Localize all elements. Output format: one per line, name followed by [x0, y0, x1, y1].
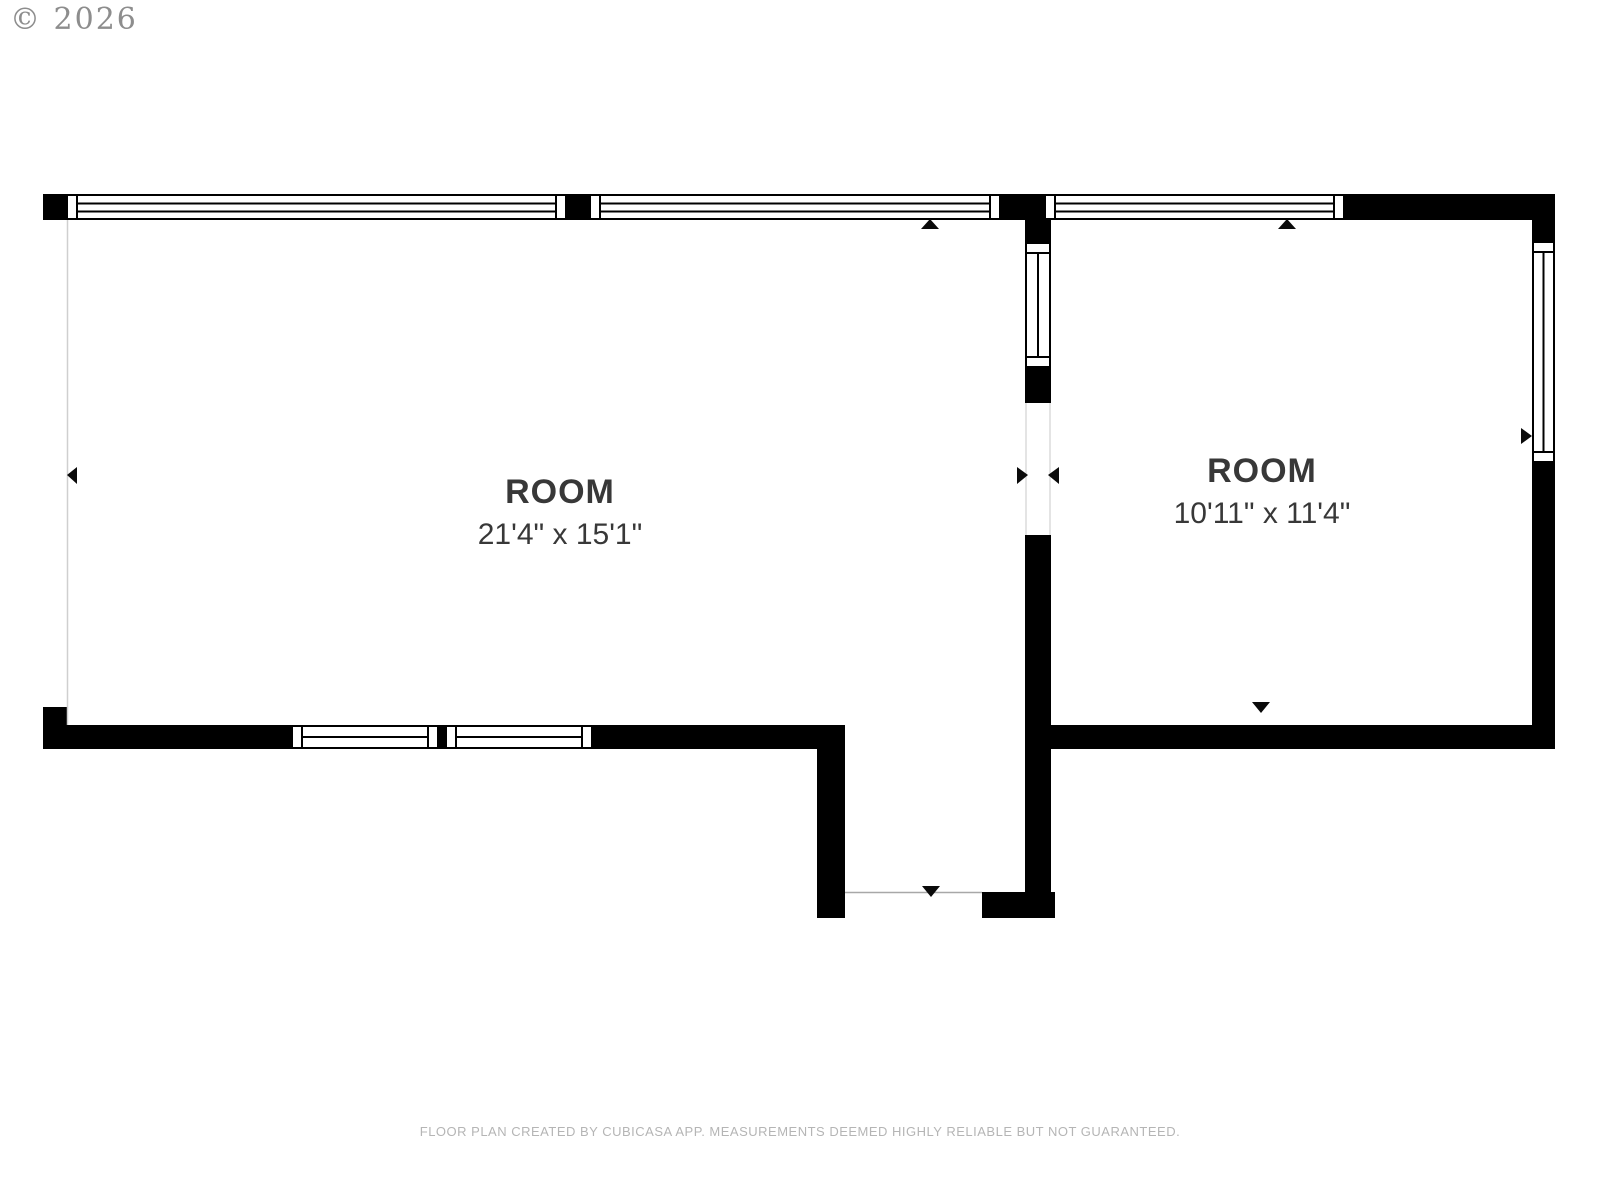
wall-top-mullion — [566, 194, 590, 220]
room1-dimensions-label: 21'4" x 15'1" — [478, 518, 643, 551]
wall-divider-top-stub — [1025, 220, 1051, 243]
opening-arrow-right-wall-icon — [1521, 428, 1532, 444]
opening-arrow-down-entry-icon — [922, 886, 940, 897]
window — [1533, 242, 1554, 462]
opening-arrow-down-room2-icon — [1252, 702, 1270, 713]
walls — [43, 194, 1555, 918]
window — [67, 195, 566, 219]
window — [446, 726, 592, 748]
window — [590, 195, 1000, 219]
wall-top-junction — [1000, 194, 1045, 220]
wall-top-left-corner — [43, 194, 67, 220]
window — [292, 726, 438, 748]
wall-top-right-segment — [1344, 194, 1555, 220]
window — [1026, 243, 1050, 367]
room2-dimensions-label: 10'11" x 11'4" — [1174, 497, 1351, 530]
floor-plan-drawing: ROOM 21'4" x 15'1" ROOM 10'11" x 11'4" — [0, 0, 1600, 1200]
wall-divider-middle — [1025, 367, 1051, 403]
disclaimer-footer: FLOOR PLAN CREATED BY CUBICASA APP. MEAS… — [0, 1124, 1600, 1139]
wall-room2-bottom — [1025, 725, 1555, 749]
opening-arrow-up-room1-icon — [921, 219, 939, 229]
wall-right-upper — [1532, 194, 1555, 242]
window — [1045, 195, 1344, 219]
opening-lines — [68, 220, 1051, 893]
room1-name-label: ROOM — [505, 473, 615, 511]
wall-corridor-left — [817, 749, 845, 918]
wall-bottom-left-corner — [43, 707, 68, 749]
room-labels: ROOM 21'4" x 15'1" ROOM 10'11" x 11'4" — [478, 452, 1351, 551]
wall-room1-bottom — [43, 725, 845, 749]
wall-divider-lower — [1025, 535, 1051, 918]
wall-corridor-bottom-block — [982, 892, 1055, 918]
room2-name-label: ROOM — [1207, 452, 1317, 490]
opening-arrow-left-icon — [67, 467, 77, 484]
opening-arrows — [67, 219, 1532, 897]
floor-plan-page: © 2026 — [0, 0, 1600, 1200]
opening-arrow-up-room2-icon — [1278, 219, 1296, 229]
wall-right-lower — [1532, 462, 1555, 749]
windows — [67, 195, 1554, 748]
